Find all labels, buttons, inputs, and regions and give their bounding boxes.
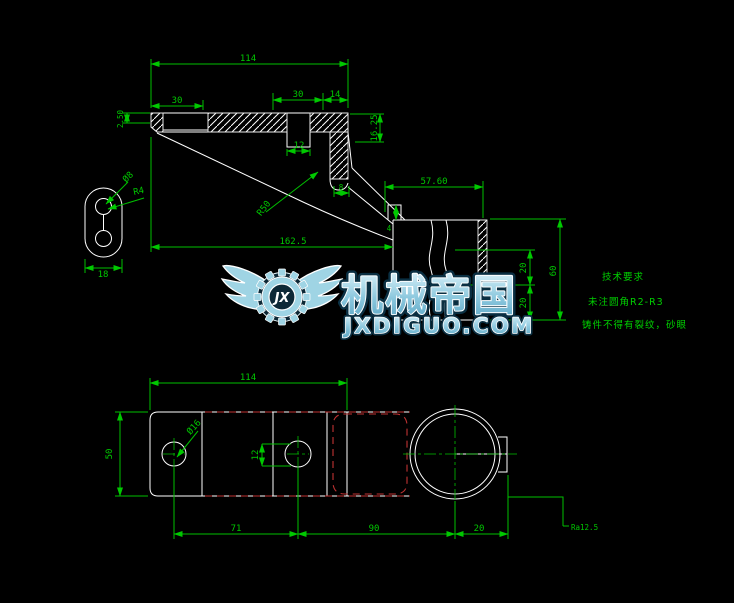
dim-front-slot-width: 12 xyxy=(294,141,305,151)
dim-front-flange-height: 16.25 xyxy=(370,114,380,141)
dim-front-overall-width: 114 xyxy=(240,54,256,64)
dim-front-lip-thickness: 2.50 xyxy=(116,109,125,128)
dim-front-body-length: 162.5 xyxy=(279,237,306,247)
dim-front-hub-lower: 20 xyxy=(519,298,529,309)
dim-bottom-overall-width: 114 xyxy=(240,373,256,383)
cad-viewport[interactable]: 114 30 30 14 12 16.25 2.50 Ø8 R4 18 162.… xyxy=(0,0,734,603)
surface-finish-label: Ra12.5 xyxy=(571,523,598,532)
dim-front-step-width: 4 xyxy=(387,224,392,233)
logo-monogram: JX xyxy=(272,291,291,306)
cad-drawing: 114 30 30 14 12 16.25 2.50 Ø8 R4 18 162.… xyxy=(0,0,734,603)
notes-rule-casting: 铸件不得有裂纹，砂眼 xyxy=(582,319,687,331)
dim-front-right-step: 30 xyxy=(293,90,304,100)
dim-bottom-hole-spacing: 71 xyxy=(231,524,242,534)
dim-front-hub-upper: 20 xyxy=(519,263,529,274)
dim-bottom-center-spacing: 90 xyxy=(369,524,380,534)
dim-bottom-boss-offset: 20 xyxy=(474,524,485,534)
dim-front-hub-length: 57.60 xyxy=(420,177,447,187)
dim-bottom-depth: 50 xyxy=(105,449,115,460)
watermark-site: JXDIGUO.COM xyxy=(342,314,535,338)
dim-front-lug-width: 18 xyxy=(98,270,109,280)
dim-bottom-hole2-dia: 12 xyxy=(251,450,261,461)
notes-title: 技术要求 xyxy=(602,271,644,283)
hatch-flange-mid xyxy=(208,113,287,132)
dim-front-hook-width: 8 xyxy=(339,183,344,192)
hatch-leg xyxy=(330,132,348,179)
watermark-brand: 机械帝国 xyxy=(341,271,517,320)
hatch-flange-right xyxy=(310,113,348,132)
dim-front-right-edge: 14 xyxy=(330,90,341,100)
dim-front-hub-height: 60 xyxy=(549,266,559,277)
notes-rule-fillets: 未注圆角R2-R3 xyxy=(588,296,664,308)
dim-front-left-flange: 30 xyxy=(172,96,183,106)
